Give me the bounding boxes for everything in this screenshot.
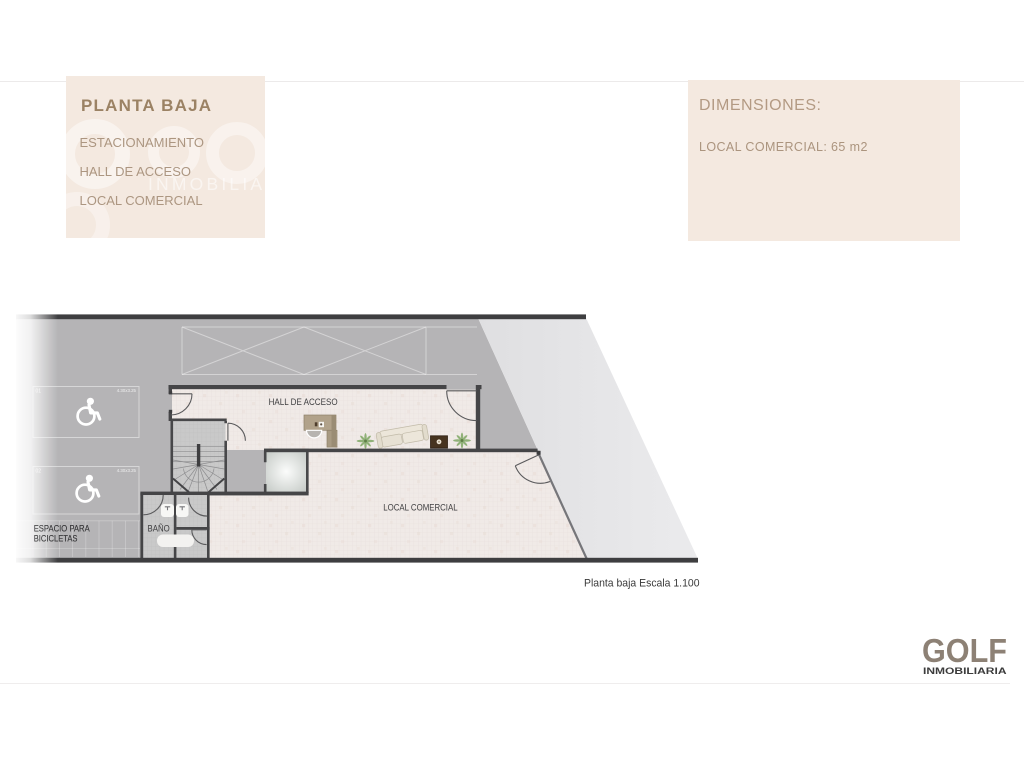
svg-text:GOLF: GOLF	[922, 633, 1007, 670]
svg-text:4.30x3.25: 4.30x3.25	[117, 468, 137, 473]
svg-text:Planta baja Escala 1.100: Planta baja Escala 1.100	[584, 578, 700, 590]
svg-text:BICICLETAS: BICICLETAS	[34, 534, 78, 544]
svg-text:ESPACIO PARA: ESPACIO PARA	[34, 523, 90, 533]
svg-text:BAÑO: BAÑO	[148, 524, 170, 534]
svg-text:LOCAL COMERCIAL: LOCAL COMERCIAL	[383, 502, 457, 513]
svg-text:HALL DE ACCESO: HALL DE ACCESO	[269, 396, 338, 407]
svg-text:INMOBILIARIA: INMOBILIARIA	[923, 666, 1007, 676]
svg-text:4.30x3.25: 4.30x3.25	[117, 388, 137, 393]
